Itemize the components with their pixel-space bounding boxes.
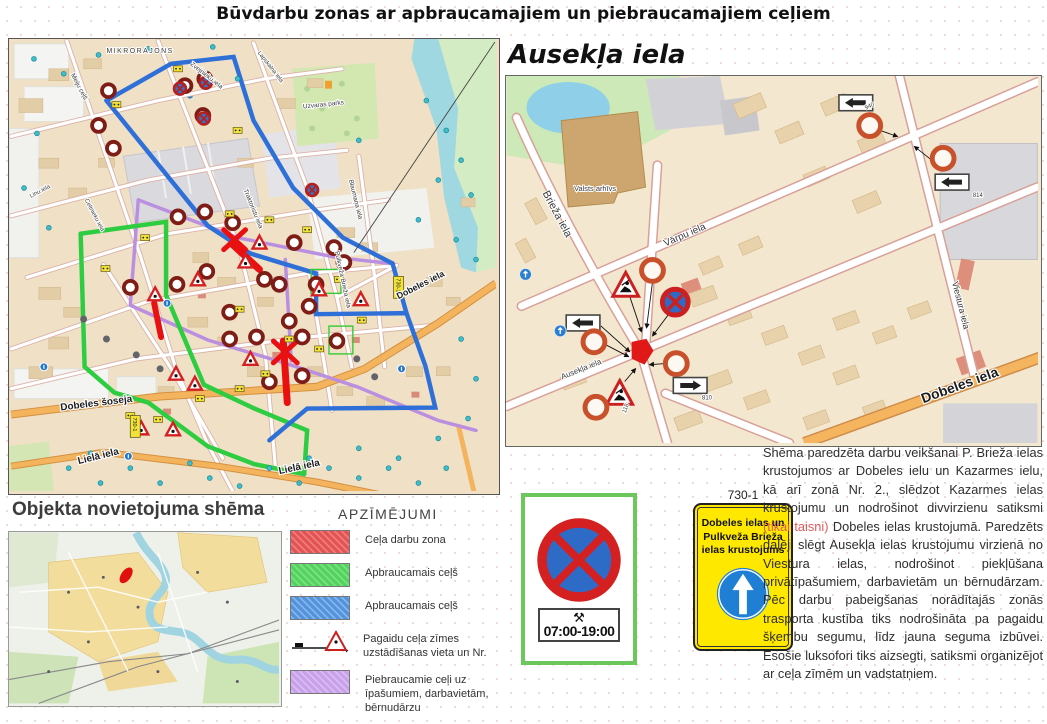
description-part1: Shēma paredzēta darbu veikšanai P. Briež… <box>763 445 1043 515</box>
svg-text:Valsts arhīvs: Valsts arhīvs <box>574 184 616 193</box>
svg-text:810: 810 <box>702 395 713 401</box>
legend-item-temporary-signs: Pagaidu ceļa zīmes uzstādīšanas vieta un… <box>290 629 505 661</box>
inset-map-canvas <box>9 532 279 704</box>
svg-text:MIKRORAJONS: MIKRORAJONS <box>106 48 173 55</box>
detour-green-swatch <box>290 563 350 587</box>
no-stopping-sign-box: ⚒ 07:00-19:00 <box>521 493 637 665</box>
access-road-swatch <box>290 670 350 694</box>
legend-heading: APZĪMĒJUMI <box>338 506 505 522</box>
svg-text:730-1: 730-1 <box>131 417 137 431</box>
legend-item-detour-green: Apbraucamais ceļš <box>290 563 505 587</box>
overview-map-canvas: 730-1 730-1 MIKRORAJONS Meiju ceļš Zvejn… <box>9 39 496 491</box>
location-scheme-heading: Objekta novietojuma shēma <box>12 499 264 521</box>
legend: APZĪMĒJUMI Ceļa darbu zona Apbraucamais … <box>290 506 505 724</box>
legend-item-work-zone: Ceļa darbu zona <box>290 530 505 554</box>
description-part2: Dobeles ielas krustojumā. Paredzēts daļē… <box>763 519 1043 681</box>
detail-map-title: Ausekļa iela <box>508 40 686 70</box>
sign-730-plate: 730-1 <box>130 416 140 438</box>
time-restriction-plate: ⚒ 07:00-19:00 <box>538 608 621 642</box>
work-zone-swatch <box>290 530 350 554</box>
page-title: Būvdarbu zonas ar apbraucamajiem un pieb… <box>0 4 1047 24</box>
description-highlight: (tikai taisni) <box>763 519 829 534</box>
temporary-sign-icon <box>290 629 348 655</box>
scheme-description: Shēma paredzēta darbu veikšanai P. Briež… <box>763 444 1043 683</box>
legend-item-detour-blue: Apbraucamais ceļš <box>290 596 505 620</box>
svg-text:814: 814 <box>973 193 984 199</box>
construction-zones-overview-map[interactable]: 730-1 730-1 MIKRORAJONS Meiju ceļš Zvejn… <box>8 38 500 495</box>
detail-map-canvas: Brieža iela Vārpu iela Ausekļa iela Vies… <box>506 76 1038 443</box>
detour-blue-swatch <box>290 596 350 620</box>
ausekla-iela-detail-map[interactable]: Brieža iela Vārpu iela Ausekļa iela Vies… <box>505 75 1042 447</box>
location-inset-map[interactable] <box>8 531 282 707</box>
legend-item-access-roads: Piebraucamie ceļi uz īpašumiem, darbavie… <box>290 670 505 716</box>
no-stopping-sign-icon <box>536 517 622 603</box>
